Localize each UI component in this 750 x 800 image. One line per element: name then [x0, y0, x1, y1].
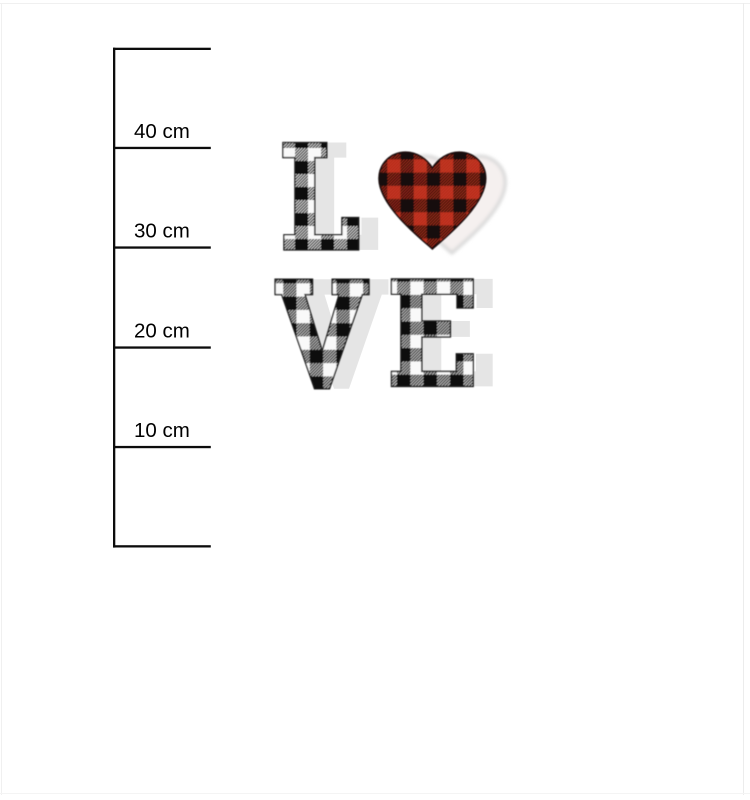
svg-text:30 cm: 30 cm [134, 220, 190, 243]
svg-text:10 cm: 10 cm [134, 419, 190, 442]
svg-text:20 cm: 20 cm [134, 320, 190, 343]
svg-text:40 cm: 40 cm [134, 120, 190, 143]
